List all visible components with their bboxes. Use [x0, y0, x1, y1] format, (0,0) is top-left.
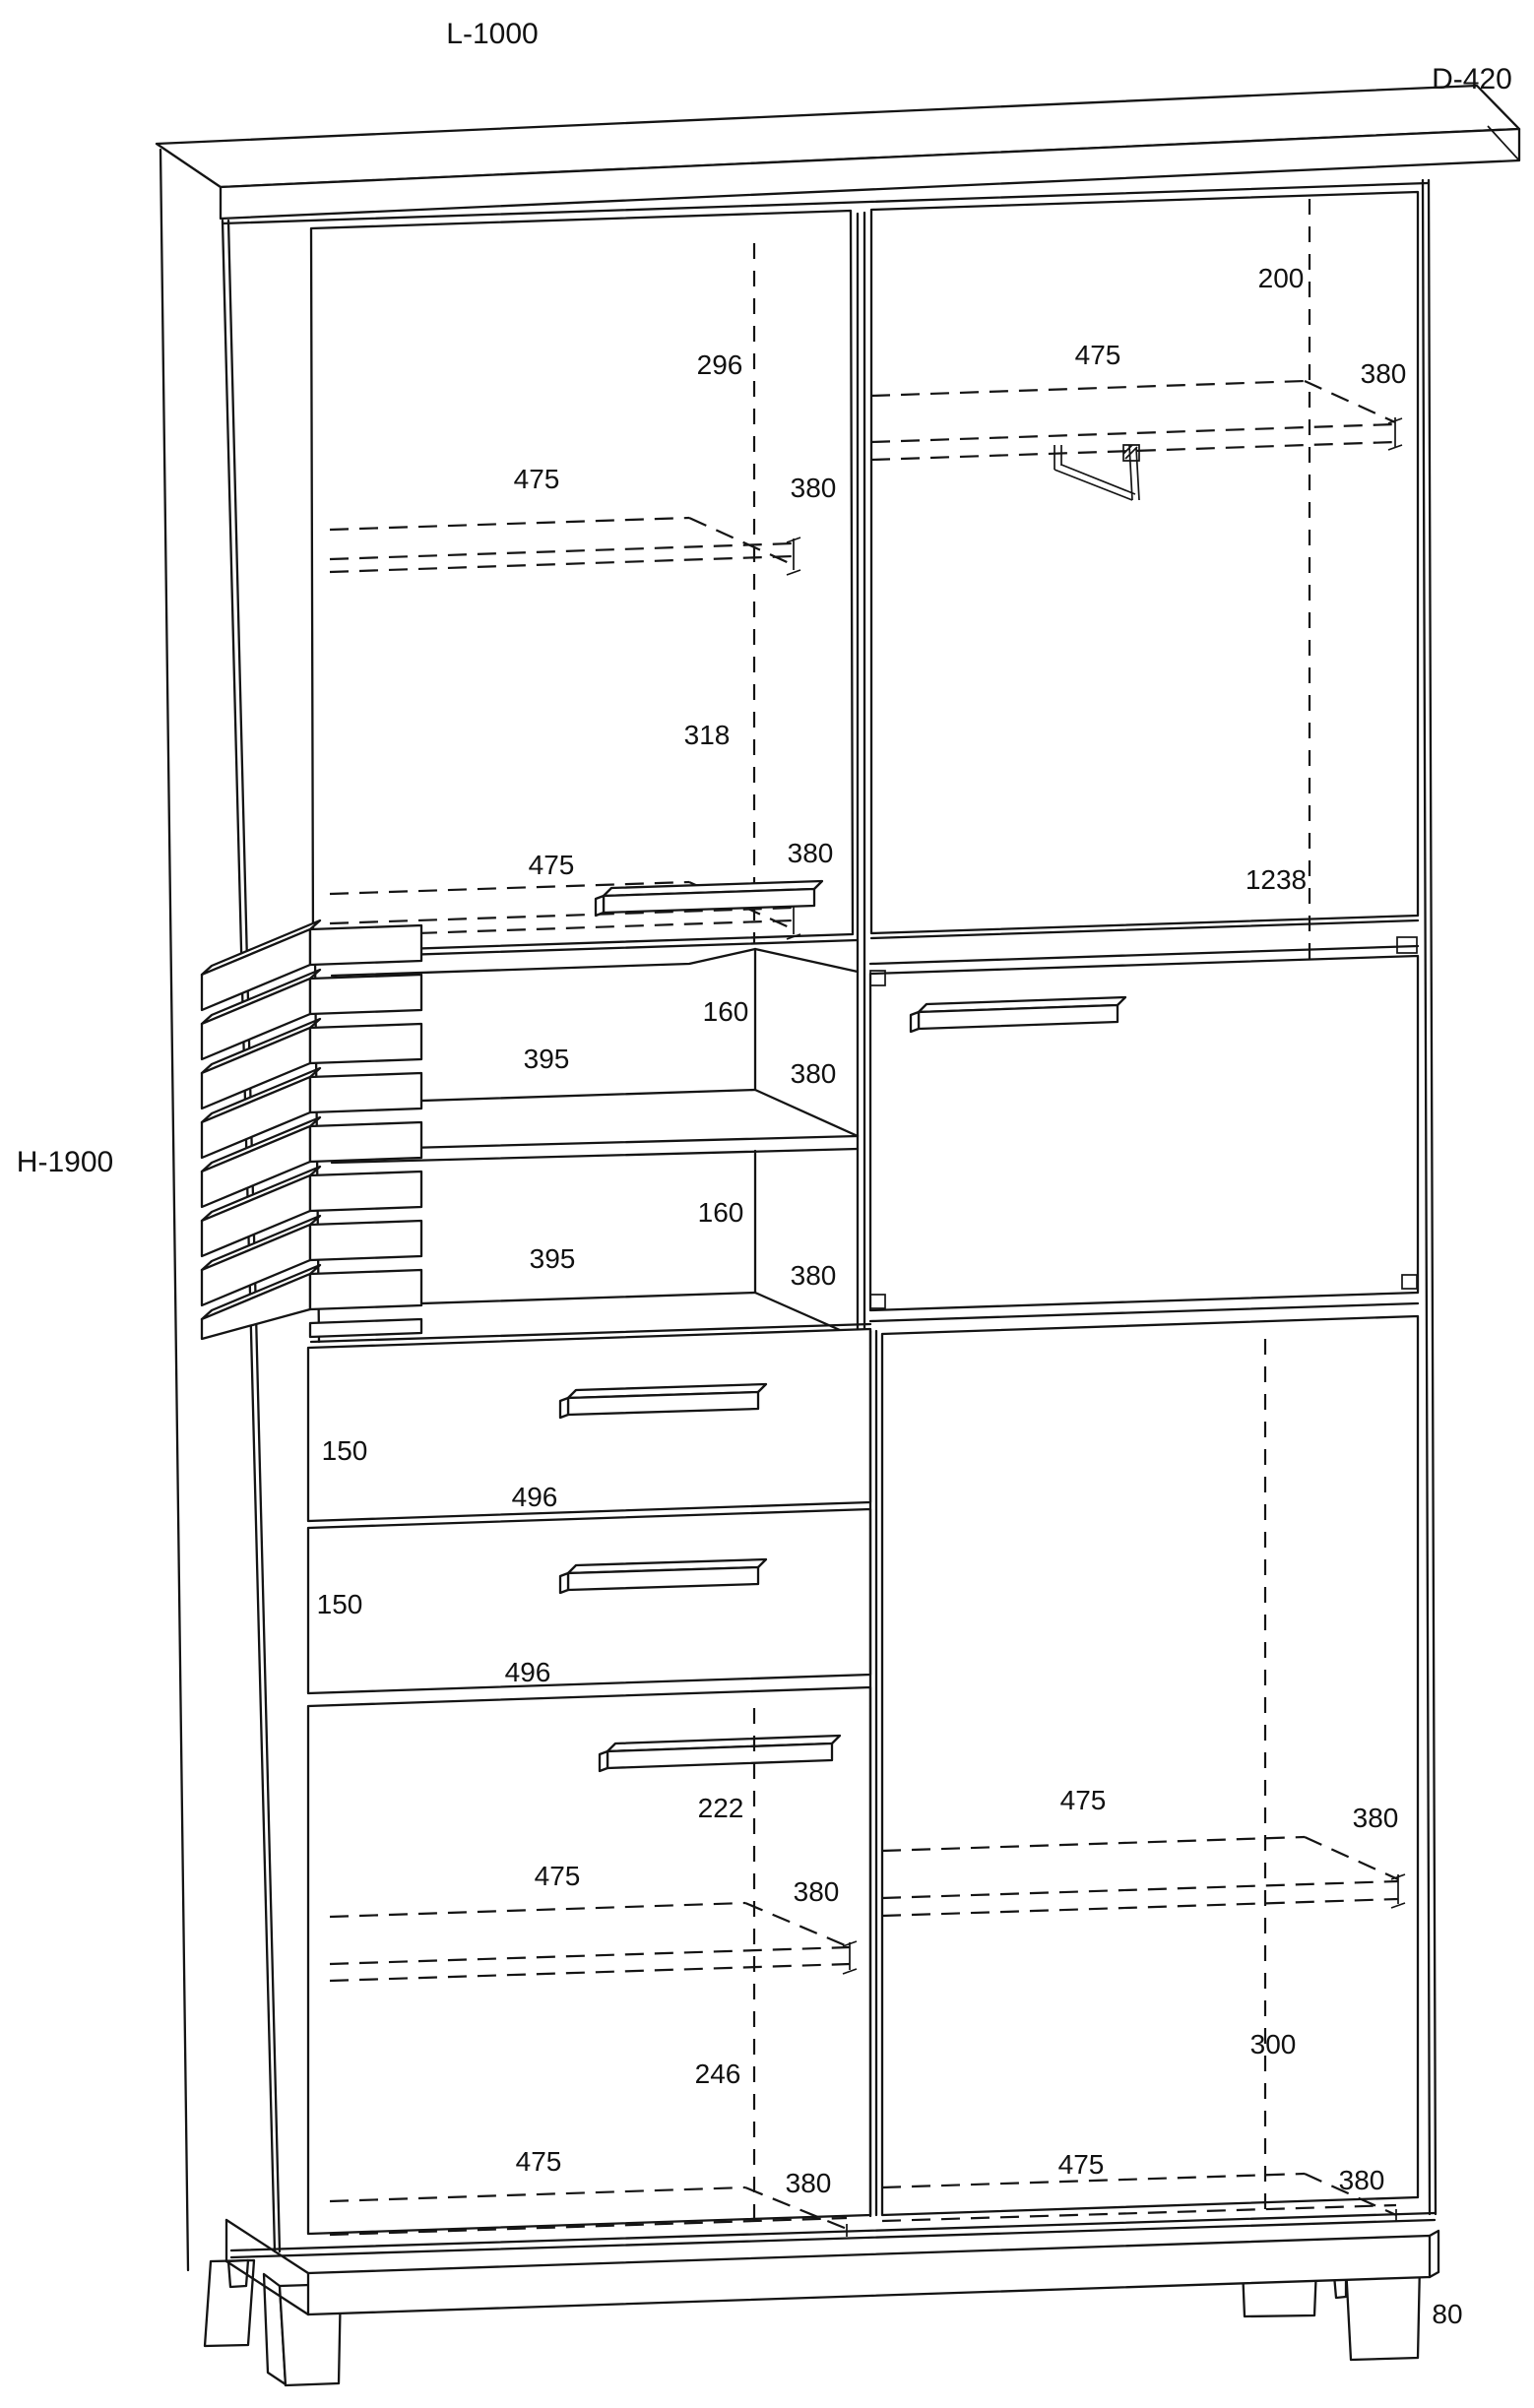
lower-left-door [308, 1687, 870, 2237]
dim-overall-height: H-1900 [17, 1146, 113, 1178]
dim-overall-length: L-1000 [446, 18, 538, 50]
dim-upper-right-top-to-rail: 200 [1258, 263, 1305, 293]
dim-lower-right-bottom-depth: 380 [1339, 2165, 1385, 2195]
center-divider-upper [858, 213, 864, 1339]
center-divider-lower [870, 1331, 876, 2216]
drawer-1 [308, 1329, 870, 1521]
dim-lower-right-shelf-to-bottom: 300 [1250, 2029, 1297, 2059]
dim-upper-left-shelf-a-width: 475 [514, 464, 560, 494]
dim-upper-left-shelf-a-depth: 380 [791, 473, 837, 503]
furniture-dimension-diagram: L-1000 D-420 H-1900 296 475 380 318 475 … [0, 0, 1534, 2408]
slat-panel [202, 920, 421, 1339]
cabinet-technical-drawing: L-1000 D-420 H-1900 296 475 380 318 475 … [0, 0, 1534, 2408]
dim-lower-left-bottom-depth: 380 [786, 2168, 832, 2198]
dim-niche-lower-width: 395 [530, 1243, 576, 1274]
dim-lower-left-shelf-to-bottom: 246 [695, 2059, 741, 2089]
dim-lower-right-shelf-width: 475 [1060, 1785, 1107, 1815]
dim-foot-height: 80 [1432, 2299, 1462, 2329]
upper-right-door [871, 192, 1418, 933]
dim-upper-right-shelf-width: 475 [1075, 340, 1121, 370]
drawer-2 [308, 1509, 870, 1693]
flap-door [870, 920, 1418, 1321]
dim-lower-right-bottom-width: 475 [1058, 2149, 1105, 2180]
dim-niche-lower-depth: 380 [791, 1260, 837, 1291]
upper-left-door [311, 211, 853, 952]
dim-lower-right-shelf-depth: 380 [1353, 1803, 1399, 1833]
dim-lower-left-top-to-shelf: 222 [698, 1793, 744, 1823]
dim-drawer-1-height: 150 [322, 1435, 368, 1466]
dim-upper-right-door-height: 1238 [1246, 864, 1307, 895]
dim-upper-left-top-to-shelf: 296 [697, 349, 743, 380]
dim-upper-right-shelf-depth: 380 [1361, 358, 1407, 389]
dim-lower-left-shelf-width: 475 [535, 1861, 581, 1891]
dim-niche-lower-height: 160 [698, 1197, 744, 1228]
dim-upper-left-shelf-spacing: 318 [684, 720, 731, 750]
dim-lower-left-shelf-depth: 380 [794, 1876, 840, 1907]
slat-partial [310, 1319, 421, 1337]
dim-niche-upper-depth: 380 [791, 1058, 837, 1089]
dim-niche-upper-width: 395 [524, 1044, 570, 1074]
dim-drawer-2-width: 496 [505, 1657, 551, 1687]
dim-drawer-2-height: 150 [317, 1589, 363, 1619]
dim-overall-depth: D-420 [1432, 63, 1512, 95]
dim-drawer-1-width: 496 [512, 1482, 558, 1512]
lower-right-door [882, 1316, 1418, 2222]
dim-upper-left-shelf-b-width: 475 [529, 850, 575, 880]
dim-lower-left-bottom-width: 475 [516, 2146, 562, 2177]
dim-niche-upper-height: 160 [703, 996, 749, 1027]
dim-upper-left-shelf-b-depth: 380 [788, 838, 834, 868]
